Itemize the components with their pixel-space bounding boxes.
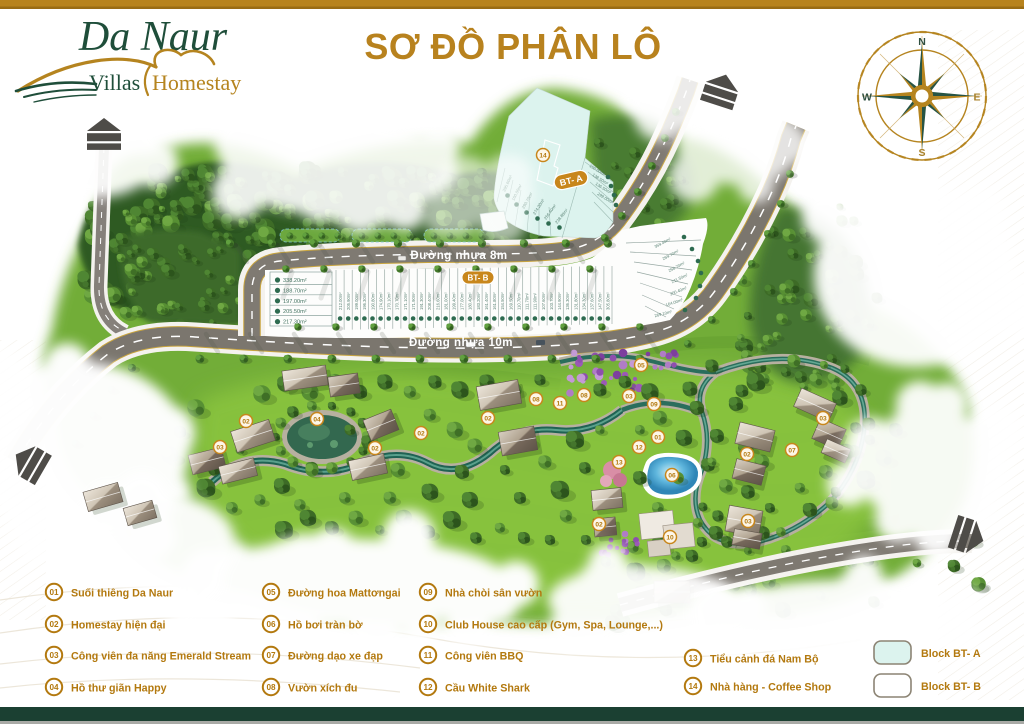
svg-text:S: S [918, 147, 925, 159]
svg-text:02: 02 [595, 521, 603, 528]
svg-text:12: 12 [423, 683, 433, 692]
svg-text:197.00m²: 197.00m² [283, 299, 307, 305]
svg-text:181.00m²: 181.00m² [443, 292, 448, 310]
svg-text:171.10m²: 171.10m² [403, 292, 408, 310]
svg-text:Đường nhựa 8m: Đường nhựa 8m [410, 250, 507, 262]
svg-text:Hồ bơi tràn bờ: Hồ bơi tràn bờ [288, 620, 363, 632]
svg-text:Công viên BBQ: Công viên BBQ [445, 651, 523, 663]
svg-text:09: 09 [423, 588, 433, 597]
svg-text:170.10m²: 170.10m² [387, 292, 392, 310]
svg-text:04: 04 [313, 416, 321, 423]
svg-text:147.50m²: 147.50m² [598, 292, 603, 310]
svg-text:208.40m²: 208.40m² [427, 292, 432, 310]
svg-text:14: 14 [539, 152, 547, 159]
svg-text:Đường hoa Mattơngai: Đường hoa Mattơngai [288, 588, 401, 600]
svg-text:08: 08 [580, 392, 588, 399]
svg-text:03: 03 [49, 651, 59, 660]
svg-text:Đường dạo xe đạp: Đường dạo xe đạp [288, 651, 383, 663]
svg-text:205.90m²: 205.90m² [346, 292, 351, 310]
svg-text:174.90m²: 174.90m² [378, 292, 383, 310]
svg-text:144.90m²: 144.90m² [557, 292, 562, 310]
svg-text:Hồ thư giãn Happy: Hồ thư giãn Happy [71, 683, 167, 695]
svg-text:Block BT- A: Block BT- A [921, 648, 981, 660]
svg-text:107.60m²: 107.60m² [541, 292, 546, 310]
svg-text:Công viên đa năng Emerald Stre: Công viên đa năng Emerald Stream [71, 651, 251, 663]
svg-text:02: 02 [49, 620, 59, 629]
svg-text:07: 07 [266, 651, 276, 660]
svg-text:Đường nhựa 10m: Đường nhựa 10m [409, 337, 513, 349]
svg-text:Nhà hàng - Coffee Shop: Nhà hàng - Coffee Shop [710, 682, 832, 694]
svg-text:03: 03 [744, 518, 752, 525]
svg-text:W: W [862, 92, 872, 104]
svg-text:Club House cao cấp (Gym, Spa,: Club House cao cấp (Gym, Spa, Lounge,...… [445, 620, 663, 632]
svg-text:13: 13 [615, 459, 623, 466]
svg-text:Vườn xích đu: Vườn xích đu [288, 683, 357, 695]
svg-text:305.80m²: 305.80m² [606, 292, 611, 310]
svg-text:161.40m²: 161.40m² [484, 292, 489, 310]
svg-text:10: 10 [423, 620, 433, 629]
svg-text:02: 02 [371, 445, 379, 452]
svg-text:136.30m²: 136.30m² [565, 292, 570, 310]
svg-text:06: 06 [266, 620, 276, 629]
svg-text:09: 09 [650, 401, 658, 408]
svg-text:154.50m²: 154.50m² [500, 292, 505, 310]
svg-text:01: 01 [49, 588, 59, 597]
svg-text:190.80m²: 190.80m² [370, 292, 375, 310]
svg-text:11: 11 [557, 400, 564, 407]
svg-text:111.70m²: 111.70m² [525, 292, 530, 310]
svg-text:212.00m²: 212.00m² [338, 292, 343, 310]
svg-text:Cầu White Shark: Cầu White Shark [445, 683, 530, 695]
svg-text:N: N [918, 36, 926, 48]
svg-text:Homestay hiện đại: Homestay hiện đại [71, 620, 165, 632]
svg-text:Tiểu cảnh đá Nam Bộ: Tiểu cảnh đá Nam Bộ [710, 654, 819, 666]
svg-text:SƠ ĐỒ PHÂN LÔ: SƠ ĐỒ PHÂN LÔ [364, 25, 661, 67]
svg-text:Homestay: Homestay [152, 70, 241, 95]
svg-text:06: 06 [668, 472, 676, 479]
svg-text:14: 14 [688, 682, 698, 691]
svg-text:171.90m²: 171.90m² [411, 292, 416, 310]
svg-text:Suối thiêng Da Naur: Suối thiêng Da Naur [71, 588, 173, 600]
svg-text:11: 11 [424, 651, 433, 660]
svg-text:02: 02 [484, 415, 492, 422]
svg-text:110.70m²: 110.70m² [516, 292, 521, 310]
svg-text:10: 10 [666, 534, 674, 541]
svg-text:02: 02 [242, 418, 250, 425]
svg-text:03: 03 [819, 415, 827, 422]
svg-text:196.30m²: 196.30m² [362, 292, 367, 310]
svg-text:131.80m²: 131.80m² [573, 292, 578, 310]
svg-text:Nhà chòi sân vườn: Nhà chòi sân vườn [445, 588, 542, 600]
svg-text:03: 03 [216, 444, 224, 451]
svg-text:191.30m²: 191.30m² [419, 292, 424, 310]
svg-text:01: 01 [654, 434, 662, 441]
svg-text:BT- B: BT- B [468, 274, 489, 283]
svg-text:199.40m²: 199.40m² [452, 292, 457, 310]
svg-text:E: E [973, 92, 980, 104]
svg-text:04: 04 [49, 683, 59, 692]
svg-text:205.50m²: 205.50m² [283, 309, 307, 315]
svg-text:177.00m²: 177.00m² [460, 292, 465, 310]
svg-text:12: 12 [635, 444, 643, 451]
svg-text:111.90m²: 111.90m² [533, 292, 538, 310]
svg-text:Block BT- B: Block BT- B [921, 681, 981, 693]
svg-text:161.80m²: 161.80m² [492, 292, 497, 310]
svg-text:08: 08 [266, 683, 276, 692]
svg-text:02: 02 [743, 451, 751, 458]
svg-text:07: 07 [788, 447, 796, 454]
svg-text:05: 05 [637, 362, 645, 369]
svg-text:Villas: Villas [89, 70, 140, 95]
svg-text:08: 08 [532, 396, 540, 403]
svg-text:05: 05 [266, 588, 276, 597]
svg-text:02: 02 [417, 430, 425, 437]
svg-text:03: 03 [625, 393, 633, 400]
svg-text:13: 13 [688, 654, 698, 663]
